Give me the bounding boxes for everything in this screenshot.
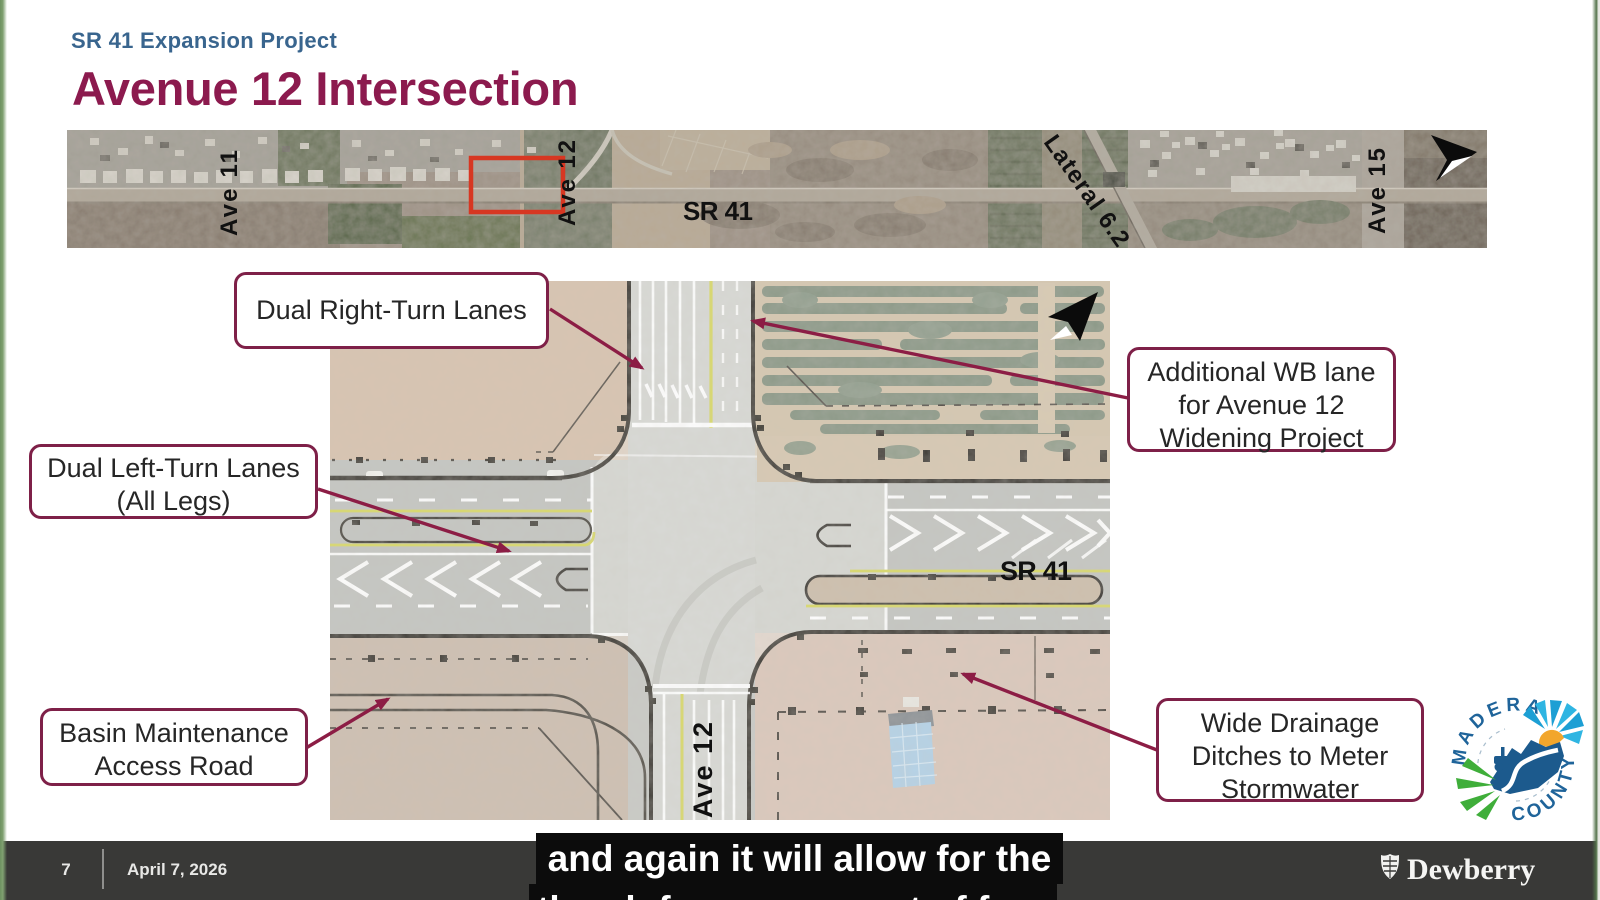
svg-text:Ave 12: Ave 12 bbox=[554, 140, 581, 226]
svg-text:SR 41: SR 41 bbox=[683, 196, 753, 226]
svg-text:Ave 11: Ave 11 bbox=[216, 150, 243, 236]
svg-text:Ave 12: Ave 12 bbox=[688, 722, 718, 818]
svg-text:SR 41: SR 41 bbox=[1000, 556, 1072, 586]
svg-text:Dewberry: Dewberry bbox=[1407, 853, 1535, 886]
svg-text:Ave 15: Ave 15 bbox=[1364, 148, 1391, 234]
